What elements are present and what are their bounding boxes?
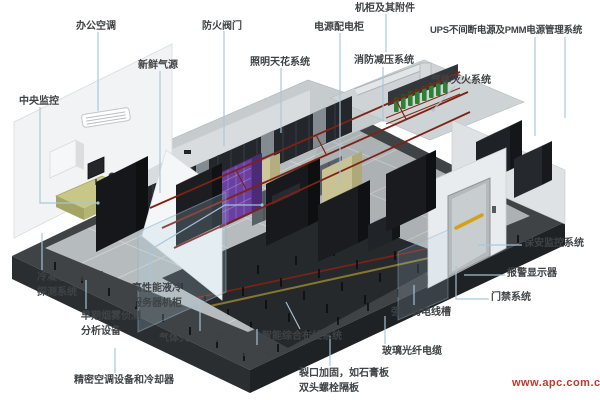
label-fire-pressure-relief: 消防减压系统 [354,54,414,69]
label-power-distribution: 电源配电柜 [314,21,364,36]
datacenter-diagram: 中央监控 办公空调 新鲜气源 防火阀门 照明天花系统 电源配电柜 机柜及其附件 … [0,0,600,400]
label-smart-cabling: 智能综合布线系统 [262,330,342,345]
label-security-monitoring: 保安监控系统 [524,237,584,252]
label-fresh-air: 新鲜气源 [138,59,178,74]
cctv-camera [184,150,191,154]
label-fire-valve: 防火阀门 [202,20,242,35]
label-precision-ac-cooler: 精密空调设备和冷却器 [74,374,174,389]
label-central-monitoring: 中央监控 [19,95,59,110]
watermark-url: www.apc.com.cn [512,377,600,389]
label-raised-floor: 高架地板 [236,346,276,361]
label-office-ac: 办公空调 [76,20,116,35]
label-hp-liquid-cooled-rack: 高性能液冷 服务器机柜 [132,282,182,311]
label-lighting-ceiling: 照明天花系统 [250,56,310,71]
label-ups-pmm: UPS不间断电源及PMM电源管理系统 [430,24,582,38]
label-early-smoke-detection: 早期烟雾侦测 分析设备 [81,310,141,339]
label-strong-weak-trunking: 强、弱电线槽 [391,306,451,321]
label-fiber-optic-cable: 玻璃光纤电缆 [382,345,442,360]
label-condensate-leak: 冷凝水盘带漏水 探测系统 [37,271,107,300]
label-gas-pipe-network: 气体灭火系统管网 [159,332,239,347]
label-cabinet-accessories: 机柜及其附件 [355,2,415,17]
label-gas-suppression: 气体灭火系统 [431,74,491,89]
label-opening-reinforcement: 裂口加固，如石膏板 双头螺栓隔板 [299,367,389,396]
label-alarm-display: 报警显示器 [507,267,557,282]
card-reader [492,206,496,213]
label-access-control: 门禁系统 [491,291,531,306]
